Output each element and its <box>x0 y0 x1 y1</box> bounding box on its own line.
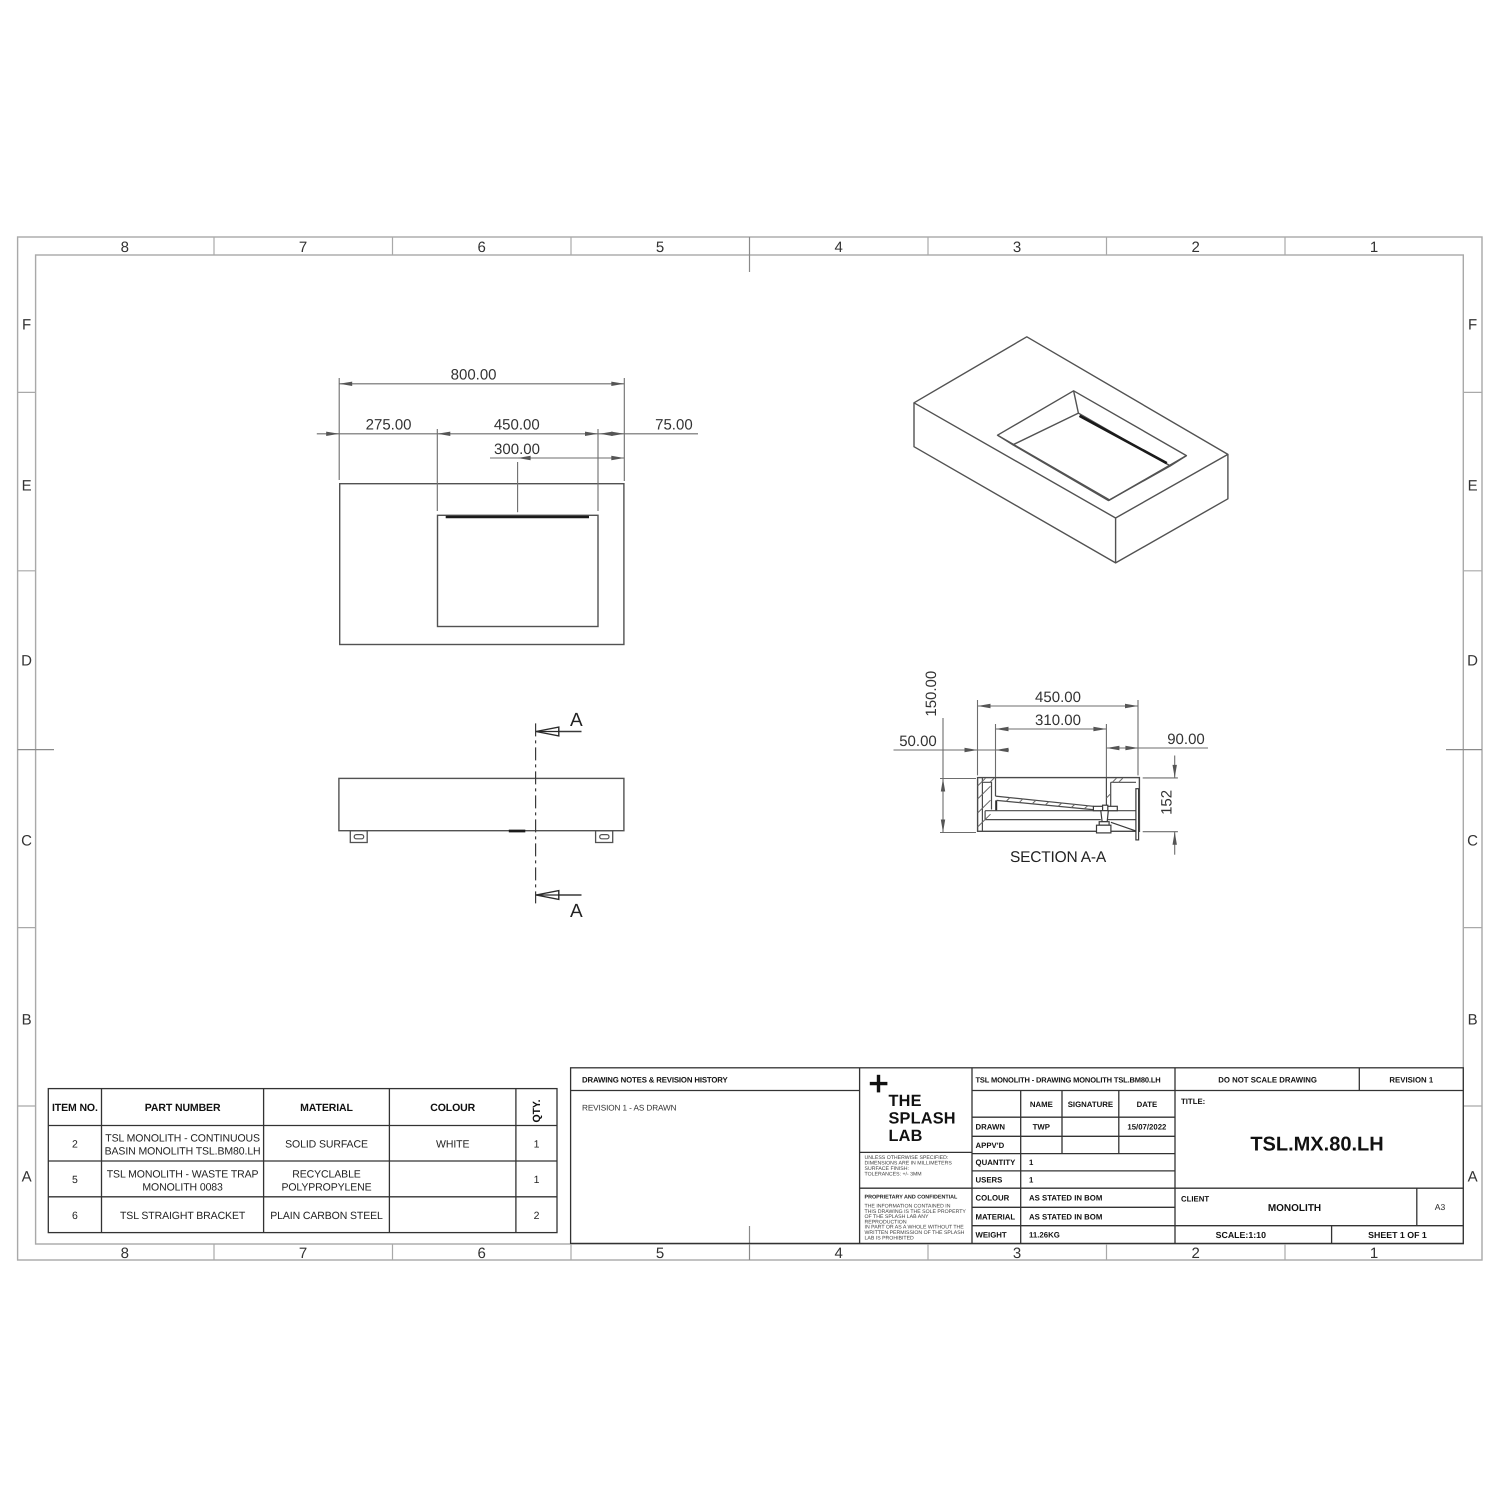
svg-text:7: 7 <box>299 1245 307 1262</box>
svg-text:5: 5 <box>72 1174 78 1186</box>
svg-text:A: A <box>570 901 583 922</box>
svg-text:75.00: 75.00 <box>655 417 693 434</box>
svg-text:300.00: 300.00 <box>494 441 540 458</box>
svg-text:B: B <box>1468 1012 1478 1029</box>
svg-text:BASIN MONOLITH TSL.BM80.LH: BASIN MONOLITH TSL.BM80.LH <box>105 1146 261 1158</box>
svg-text:TOLERANCES: +/- 3MM: TOLERANCES: +/- 3MM <box>865 1171 922 1177</box>
svg-text:8: 8 <box>121 1245 129 1262</box>
svg-text:1: 1 <box>534 1174 540 1186</box>
svg-text:COLOUR: COLOUR <box>430 1102 475 1114</box>
svg-text:TWP: TWP <box>1033 1123 1050 1132</box>
svg-text:QTY.: QTY. <box>531 1099 543 1122</box>
svg-text:1: 1 <box>1029 1158 1034 1167</box>
svg-text:THE: THE <box>889 1092 922 1110</box>
svg-text:MONOLITH: MONOLITH <box>1268 1203 1321 1214</box>
svg-text:310.00: 310.00 <box>1035 712 1081 729</box>
svg-text:DO NOT SCALE DRAWING: DO NOT SCALE DRAWING <box>1218 1076 1317 1085</box>
svg-text:TSL MONOLITH - CONTINUOUS: TSL MONOLITH - CONTINUOUS <box>105 1133 260 1145</box>
svg-text:8: 8 <box>121 239 129 256</box>
svg-text:C: C <box>1467 833 1478 850</box>
svg-text:F: F <box>22 317 31 334</box>
svg-text:SIGNATURE: SIGNATURE <box>1068 1100 1113 1109</box>
svg-text:PROPRIETARY AND CONFIDENTIAL: PROPRIETARY AND CONFIDENTIAL <box>865 1195 959 1201</box>
svg-text:450.00: 450.00 <box>1035 689 1081 706</box>
svg-text:E: E <box>22 478 32 495</box>
svg-text:450.00: 450.00 <box>494 417 540 434</box>
svg-text:6: 6 <box>478 1245 486 1262</box>
svg-text:2: 2 <box>1192 239 1200 256</box>
svg-text:CLIENT: CLIENT <box>1181 1195 1209 1204</box>
svg-text:MONOLITH 0083: MONOLITH 0083 <box>142 1181 223 1193</box>
svg-text:DRAWN: DRAWN <box>976 1123 1006 1132</box>
svg-text:2: 2 <box>72 1138 78 1150</box>
svg-text:POLYPROPYLENE: POLYPROPYLENE <box>281 1181 371 1193</box>
svg-text:C: C <box>21 833 32 850</box>
svg-text:2: 2 <box>534 1210 540 1222</box>
svg-text:AS STATED IN BOM: AS STATED IN BOM <box>1029 1213 1102 1222</box>
svg-text:MATERIAL: MATERIAL <box>976 1213 1016 1222</box>
svg-text:1: 1 <box>1370 1245 1378 1262</box>
svg-text:A: A <box>570 710 583 731</box>
svg-text:QUANTITY: QUANTITY <box>976 1158 1017 1167</box>
svg-text:B: B <box>22 1012 32 1029</box>
svg-text:ITEM NO.: ITEM NO. <box>52 1102 98 1114</box>
svg-text:1: 1 <box>1029 1176 1034 1185</box>
svg-text:D: D <box>1467 653 1478 670</box>
svg-text:6: 6 <box>478 239 486 256</box>
svg-text:1: 1 <box>534 1138 540 1150</box>
svg-text:TITLE:: TITLE: <box>1181 1097 1205 1106</box>
svg-text:PLAIN CARBON STEEL: PLAIN CARBON STEEL <box>270 1210 383 1222</box>
svg-text:APPV'D: APPV'D <box>976 1141 1005 1150</box>
svg-text:3: 3 <box>1013 239 1021 256</box>
svg-text:TSL MONOLITH - DRAWING MONOLIT: TSL MONOLITH - DRAWING MONOLITH TSL.BM80… <box>976 1076 1161 1085</box>
svg-text:E: E <box>1468 478 1478 495</box>
svg-text:REVISION 1: REVISION 1 <box>1389 1076 1433 1085</box>
svg-text:800.00: 800.00 <box>451 367 497 384</box>
svg-text:A3: A3 <box>1435 1202 1446 1212</box>
svg-text:PART NUMBER: PART NUMBER <box>145 1102 221 1114</box>
svg-text:SOLID SURFACE: SOLID SURFACE <box>285 1138 368 1150</box>
svg-text:SCALE:1:10: SCALE:1:10 <box>1216 1230 1266 1240</box>
svg-text:REVISION 1 - AS DRAWN: REVISION 1 - AS DRAWN <box>582 1104 677 1113</box>
svg-text:5: 5 <box>656 239 664 256</box>
svg-text:NAME: NAME <box>1030 1100 1053 1109</box>
svg-text:TSL STRAIGHT BRACKET: TSL STRAIGHT BRACKET <box>120 1210 246 1222</box>
svg-text:4: 4 <box>835 1245 843 1262</box>
svg-text:USERS: USERS <box>976 1176 1003 1185</box>
svg-text:COLOUR: COLOUR <box>976 1194 1010 1203</box>
svg-text:MATERIAL: MATERIAL <box>300 1102 353 1114</box>
svg-text:TSL.MX.80.LH: TSL.MX.80.LH <box>1250 1134 1383 1156</box>
svg-text:50.00: 50.00 <box>899 733 937 750</box>
svg-text:SHEET 1 OF 1: SHEET 1 OF 1 <box>1368 1230 1427 1240</box>
svg-text:SECTION A-A: SECTION A-A <box>1010 849 1107 866</box>
svg-text:D: D <box>21 653 32 670</box>
svg-text:152: 152 <box>1159 790 1176 815</box>
svg-text:A: A <box>22 1169 32 1186</box>
svg-text:AS STATED IN BOM: AS STATED IN BOM <box>1029 1194 1102 1203</box>
svg-text:6: 6 <box>72 1210 78 1222</box>
svg-text:LAB IS PROHIBITED: LAB IS PROHIBITED <box>865 1235 915 1241</box>
svg-text:TSL MONOLITH - WASTE TRAP: TSL MONOLITH - WASTE TRAP <box>107 1168 259 1180</box>
svg-text:150.00: 150.00 <box>923 671 940 717</box>
svg-text:A: A <box>1468 1169 1478 1186</box>
svg-text:LAB: LAB <box>889 1127 923 1145</box>
svg-text:RECYCLABLE: RECYCLABLE <box>292 1168 361 1180</box>
svg-text:WHITE: WHITE <box>436 1138 469 1150</box>
svg-text:F: F <box>1468 317 1477 334</box>
svg-text:275.00: 275.00 <box>366 417 412 434</box>
svg-text:11.26KG: 11.26KG <box>1029 1231 1060 1240</box>
svg-text:5: 5 <box>656 1245 664 1262</box>
svg-text:4: 4 <box>835 239 843 256</box>
svg-text:7: 7 <box>299 239 307 256</box>
svg-text:2: 2 <box>1192 1245 1200 1262</box>
svg-text:DATE: DATE <box>1137 1100 1158 1109</box>
svg-text:SPLASH: SPLASH <box>889 1110 956 1128</box>
svg-text:DRAWING NOTES & REVISION HISTO: DRAWING NOTES & REVISION HISTORY <box>582 1076 728 1085</box>
svg-text:WEIGHT: WEIGHT <box>976 1231 1007 1240</box>
svg-text:90.00: 90.00 <box>1167 731 1205 748</box>
svg-text:3: 3 <box>1013 1245 1021 1262</box>
svg-text:15/07/2022: 15/07/2022 <box>1127 1123 1167 1132</box>
svg-text:1: 1 <box>1370 239 1378 256</box>
